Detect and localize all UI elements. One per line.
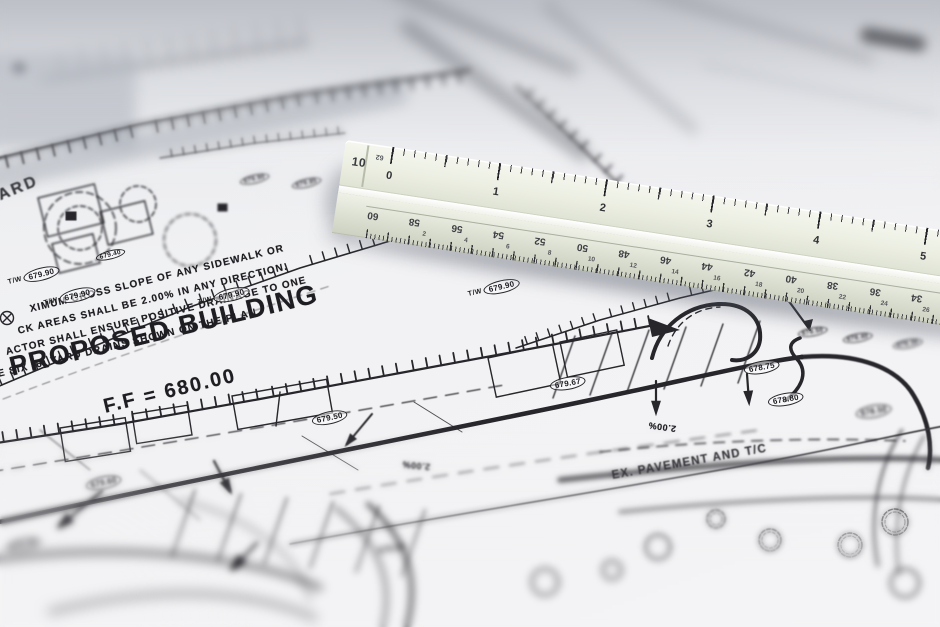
ruler-front-number: 54 <box>492 228 505 241</box>
marker-prefix: T/W <box>43 297 59 307</box>
elevation-value: 679.67 <box>549 374 587 393</box>
photo-blueprint-scene: YARD XIMUM CROSS SLOPE OF ANY SIDEWALK O… <box>0 0 940 627</box>
ruler-front-number: 46 <box>659 253 672 266</box>
ruler-front-number: 42 <box>743 266 756 279</box>
ruler-front-number: 60 <box>367 209 380 222</box>
marker-prefix: T/W <box>197 296 213 306</box>
ruler-top-number: 1 <box>492 186 500 199</box>
ruler-front-number: 56 <box>450 222 463 235</box>
ruler-front-number: 48 <box>618 247 631 260</box>
elevation-value: 679.40 <box>95 247 126 263</box>
ruler-tip-number: 62 <box>375 153 384 161</box>
ruler-front-number: 58 <box>409 215 422 228</box>
ruler-front-number: 34 <box>910 291 923 304</box>
spot-elevation-marker: 679.40 <box>95 247 126 263</box>
spot-elevation-marker: T/W679.90 <box>6 263 60 288</box>
ruler-scale-label: 10 <box>351 154 367 170</box>
spot-elevation-marker: 679.67 <box>549 374 587 393</box>
ruler-top-number: 2 <box>599 202 607 215</box>
ruler-front-number: 40 <box>785 272 798 285</box>
spot-elevation-marker: 678.80 <box>767 390 805 409</box>
ruler-front-number: 36 <box>869 285 882 298</box>
ruler-top-number: 5 <box>919 250 927 263</box>
ruler-top-number: 3 <box>706 218 714 231</box>
ruler-front-number: 38 <box>827 279 840 292</box>
depth-blur-corner <box>0 387 340 627</box>
elevation-value: 679.90 <box>22 263 60 284</box>
spot-elevation-marker: T/W679.90 <box>42 284 96 309</box>
elevation-value: 678.80 <box>767 390 805 409</box>
marker-prefix: T/W <box>7 276 23 286</box>
ruler-front-number: 44 <box>701 260 714 273</box>
ruler-front-number: 50 <box>576 241 589 254</box>
marker-prefix: T/W <box>467 288 483 298</box>
elevation-value: 678.75 <box>743 358 781 377</box>
ruler-top-number: 4 <box>812 234 820 247</box>
ruler-front-number: 52 <box>534 234 547 247</box>
spot-elevation-marker: 678.75 <box>743 358 781 377</box>
ruler-top-number: 0 <box>385 169 393 182</box>
